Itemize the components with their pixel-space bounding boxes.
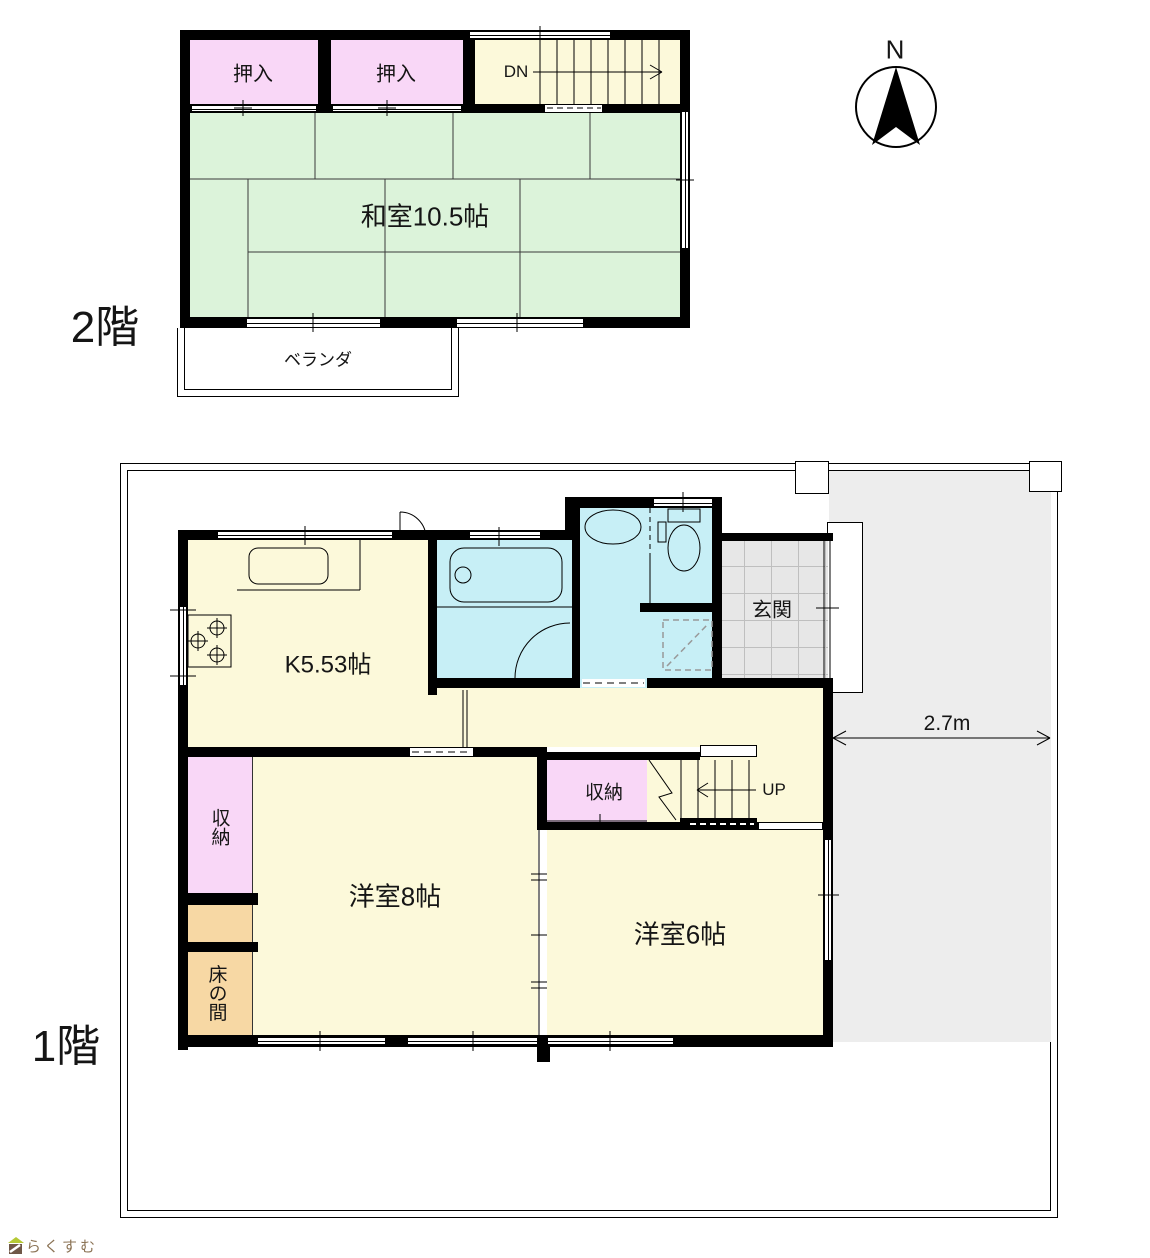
stairs-up-label: UP bbox=[762, 780, 786, 800]
tatami-room-label: 和室10.5帖 bbox=[361, 197, 490, 234]
floor2-closet-a-sliding-door bbox=[192, 105, 316, 112]
compass-circle bbox=[855, 66, 937, 148]
wall-entrance-bottom bbox=[647, 678, 833, 688]
floor1-title: 1階 bbox=[32, 1010, 100, 1074]
wall-kitchen-bottom bbox=[178, 747, 547, 757]
toilet-room bbox=[650, 508, 712, 603]
floor2-title: 2階 bbox=[71, 291, 139, 355]
hall-closet-label: 収納 bbox=[585, 778, 623, 805]
closet-b-label: 押入 bbox=[376, 58, 416, 87]
shower-area bbox=[650, 612, 712, 678]
wall-east-upper bbox=[823, 688, 833, 830]
tokonoma-label: 床の間 bbox=[203, 965, 230, 1022]
wall-toilet-bottom bbox=[640, 603, 712, 612]
floor2-closet-separator-wall-2 bbox=[463, 30, 475, 113]
floor2-closet-separator-wall-1 bbox=[318, 30, 331, 113]
logo-text: らくすむ bbox=[26, 1236, 98, 1257]
bath-north-window bbox=[470, 531, 540, 539]
wall-bath-left bbox=[428, 530, 437, 695]
closet-a-label: 押入 bbox=[233, 58, 273, 87]
kitchen-west-window bbox=[179, 607, 187, 685]
floorplan-canvas: 2階 押入 押入 DN 和室10.5帖 ベランダ N K5.53帖 玄関 収納 … bbox=[0, 0, 1150, 1258]
wall-partition-stub-bottom bbox=[537, 1047, 550, 1062]
kitchen-label: K5.53帖 bbox=[285, 645, 372, 680]
floor1-stairs bbox=[647, 757, 757, 822]
room8-south-window-1 bbox=[258, 1037, 385, 1045]
landing-room6-opening bbox=[758, 822, 823, 830]
driveway-dimension-label: 2.7m bbox=[924, 712, 971, 736]
wall-partition-stub-top bbox=[537, 747, 547, 830]
room6-south-window bbox=[548, 1037, 673, 1045]
floor2-closet-b-sliding-door bbox=[333, 105, 461, 112]
wall-entrance-left bbox=[712, 497, 722, 688]
rakusumu-logo-icon bbox=[8, 1237, 24, 1254]
wall-tokonoma-top bbox=[178, 942, 258, 952]
wall-west-closet-bottom bbox=[178, 893, 258, 905]
western-room-8-label: 洋室8帖 bbox=[349, 877, 441, 914]
toilet-north-window bbox=[654, 498, 712, 507]
entrance-label: 玄関 bbox=[752, 594, 792, 623]
floor2-south-window-2 bbox=[457, 318, 583, 328]
western-room-6-label: 洋室6帖 bbox=[634, 915, 726, 952]
west-storage-strip bbox=[188, 905, 253, 942]
washroom-door-opening bbox=[582, 679, 645, 687]
kitchen-north-window bbox=[218, 531, 392, 539]
wall-bath-bottom bbox=[428, 678, 580, 688]
stairs-dn-label: DN bbox=[504, 62, 529, 82]
wall-entrance-top bbox=[712, 533, 833, 541]
wall-stairs-top bbox=[547, 752, 700, 760]
wall-step-vertical bbox=[565, 497, 575, 540]
bathroom bbox=[437, 540, 572, 688]
floor2-east-window bbox=[681, 112, 689, 248]
compass-n-label: N bbox=[886, 35, 905, 66]
floor2-stairs-opening bbox=[545, 105, 602, 112]
west-closet-label: 収納 bbox=[206, 808, 233, 846]
washroom bbox=[580, 508, 650, 688]
boundary-pillar-1 bbox=[795, 461, 829, 494]
floor2-north-window bbox=[470, 31, 610, 39]
room6-east-window bbox=[824, 840, 832, 960]
hallway bbox=[433, 688, 823, 747]
kitchen bbox=[188, 540, 433, 747]
room8-south-window-2 bbox=[408, 1037, 537, 1045]
entrance-porch-step bbox=[827, 522, 863, 693]
wall-stairs-bottom bbox=[680, 818, 757, 828]
kitchen-room8-opening bbox=[410, 748, 473, 756]
veranda-label: ベランダ bbox=[284, 346, 352, 371]
boundary-pillar-2 bbox=[1029, 461, 1062, 492]
hall-stairs-opening bbox=[700, 745, 757, 757]
floor2-south-window-1 bbox=[247, 318, 380, 328]
